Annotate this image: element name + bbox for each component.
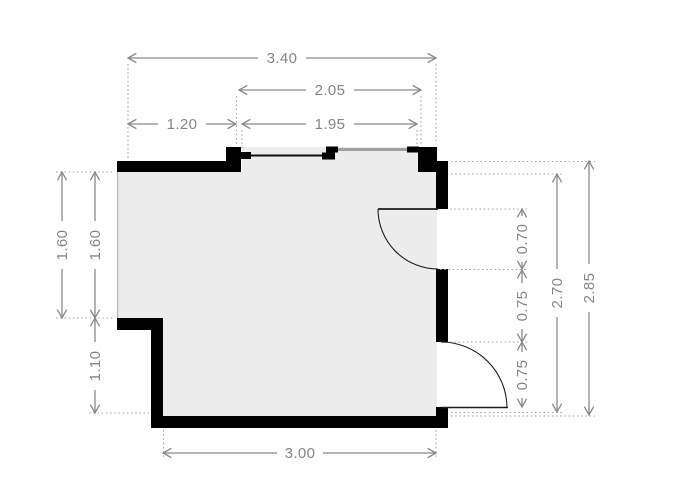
door-lower-right[interactable] [441, 342, 508, 408]
dimension-bottom-inner-width: 3.00 [163, 445, 436, 462]
dimension-label: 1.95 [315, 116, 346, 133]
sliding-door-frame-right [407, 147, 419, 153]
floor-plan: 3.40 2.05 1.20 1.95 1.60 1.60 [0, 0, 673, 492]
dimension-label: 1.20 [167, 116, 198, 133]
dimension-label: 3.40 [267, 50, 298, 67]
dimension-label: 2.70 [549, 278, 566, 309]
dimension-label: 2.85 [581, 273, 598, 304]
wall-top-right-jamb[interactable] [418, 147, 437, 172]
dimension-upper-height-inner: 1.60 [87, 172, 104, 318]
dimension-upper-door-opening: 0.70 [514, 209, 531, 269]
dimension-wall-between-doors: 0.75 [514, 270, 531, 342]
wall-left-lower[interactable] [151, 318, 163, 428]
dimension-label: 0.75 [514, 291, 531, 322]
dimension-inner-height: 2.70 [549, 174, 566, 412]
dimension-upper-height-outer: 1.60 [54, 172, 71, 318]
floor-plan-canvas: 3.40 2.05 1.20 1.95 1.60 1.60 [0, 0, 673, 492]
dimension-opening-structural-width: 2.05 [239, 82, 421, 99]
dimension-overall-height: 2.85 [581, 161, 598, 415]
dimension-label: 0.70 [514, 224, 531, 255]
dimension-lower-door-opening: 0.75 [514, 342, 531, 407]
wall-top-step[interactable] [226, 147, 241, 172]
dimension-label: 1.60 [87, 230, 104, 261]
dimension-label: 1.60 [54, 230, 71, 261]
sliding-door-frame-mid-upper [326, 147, 338, 153]
wall-bottom[interactable] [151, 416, 448, 428]
dimension-overall-width: 3.40 [128, 50, 436, 67]
door-lower-swing-arc [441, 342, 507, 408]
wall-right-upper[interactable] [436, 161, 448, 209]
wall-left-step[interactable] [117, 318, 163, 330]
dimension-label: 0.75 [514, 360, 531, 391]
dimension-top-left-wall-segment: 1.20 [128, 116, 236, 133]
dimension-label: 1.10 [87, 351, 104, 382]
dimension-lower-height: 1.10 [87, 318, 104, 413]
dimension-sliding-door-width: 1.95 [242, 116, 417, 133]
wall-top-left[interactable] [117, 161, 241, 172]
wall-right-middle[interactable] [436, 269, 448, 342]
dimension-label: 3.00 [285, 445, 316, 462]
dimension-label: 2.05 [315, 82, 346, 99]
sliding-door-frame-mid-lower [322, 153, 335, 160]
room-floor[interactable] [117, 147, 437, 416]
sliding-door-frame-left [240, 152, 251, 159]
